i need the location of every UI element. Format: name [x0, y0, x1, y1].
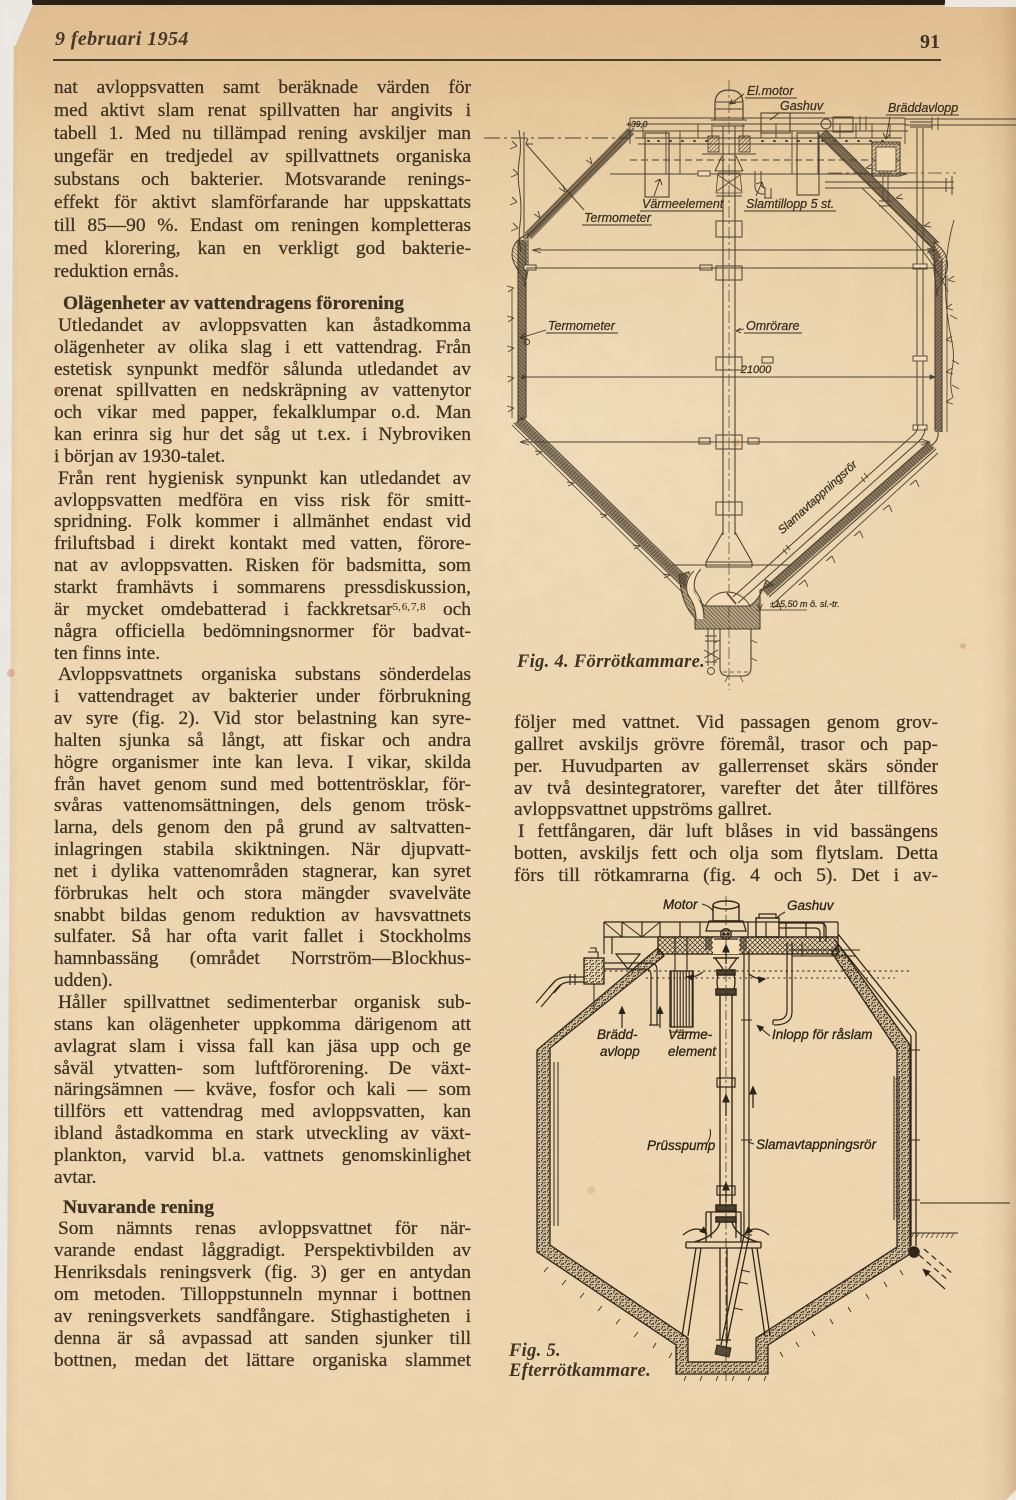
svg-text:Slamavtappningsrör: Slamavtappningsrör [776, 458, 860, 537]
svg-text:Prüsspump: Prüsspump [647, 1138, 716, 1153]
svg-text:avlopp: avlopp [600, 1044, 640, 1059]
svg-text:element: element [668, 1044, 717, 1059]
svg-text:21000: 21000 [740, 364, 772, 376]
svg-text:Värme-: Värme- [668, 1027, 713, 1042]
svg-text:±15,50 m ö. sl.-tr.: ±15,50 m ö. sl.-tr. [770, 599, 840, 609]
svg-text:Värmeelement: Värmeelement [642, 197, 724, 211]
svg-text:Slamavtappningsrör: Slamavtappningsrör [756, 1137, 877, 1152]
svg-text:Slamtillopp 5 st.: Slamtillopp 5 st. [746, 197, 834, 211]
svg-text:Termometer: Termometer [548, 319, 616, 333]
svg-text:Inlopp för råslam: Inlopp för råslam [772, 1027, 873, 1042]
svg-text:Termometer: Termometer [584, 211, 652, 225]
svg-text:Gashuv: Gashuv [780, 99, 824, 113]
svg-text:El.motor: El.motor [747, 84, 794, 98]
svg-text:Omrörare: Omrörare [746, 319, 800, 333]
svg-text:+39,0: +39,0 [626, 119, 648, 129]
svg-text:Brädd-: Brädd- [597, 1027, 638, 1042]
svg-text:Motor: Motor [663, 897, 698, 912]
svg-text:Gashuv: Gashuv [787, 898, 835, 913]
svg-text:Bräddavlopp: Bräddavlopp [888, 101, 958, 115]
